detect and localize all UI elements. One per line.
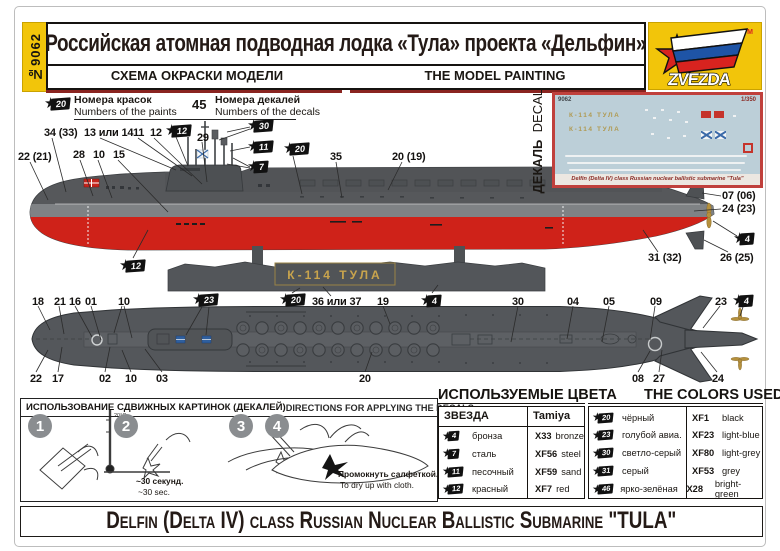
star-icon: ★ xyxy=(733,232,746,245)
side-view-callout: 34 (33) xyxy=(44,127,77,139)
step2-note-ru: ~30 секунд. xyxy=(136,476,183,486)
colors-title-underline-left xyxy=(438,403,585,404)
decal-caption: Delfin (Delta IV) class Russian nuclear … xyxy=(555,174,760,185)
side-view-callout: 31 (32) xyxy=(648,252,681,264)
star-icon: ★ xyxy=(165,124,178,137)
paint-flag: ★7 xyxy=(439,448,472,459)
top-view-callout: 18 xyxy=(32,296,44,308)
step4-note-en: To dry up with cloth. xyxy=(340,480,414,490)
subtitle-russian: СХЕМА ОКРАСКИ МОДЕЛИ xyxy=(48,68,346,83)
star-icon: ★ xyxy=(119,259,132,272)
footer-title: Delfin (Delta IV) class Russian Nuclear … xyxy=(106,508,676,535)
step4-note-ru: Промокнуть салфеткой. xyxy=(338,469,438,479)
top-view-callout: 05 xyxy=(603,296,615,308)
paint-table-right: ★20 чёрный XF1 black ★23 голубой авиа. X… xyxy=(588,406,763,499)
paint-table-left: ЗВЕЗДА Tamiya ★4 бронза X33 bronze ★7 ст… xyxy=(438,406,585,499)
top-view-callout: 19 xyxy=(377,296,389,308)
decal-andrew-flag-1 xyxy=(701,131,712,139)
decal-waterline-1 xyxy=(565,155,747,157)
product-number-block: №9062 xyxy=(22,22,48,92)
star-icon: ★ xyxy=(442,484,453,495)
star-icon: ★ xyxy=(442,431,453,442)
tamiya-column: Tamiya xyxy=(533,410,570,422)
propeller-side xyxy=(707,203,712,228)
star-icon: ★ xyxy=(592,448,603,459)
zvezda-emblem: TM ZVEZDA xyxy=(649,23,761,89)
side-view-paint-flag: ★20 xyxy=(283,142,309,155)
paint-flag: ★4 xyxy=(439,431,472,442)
paint-flag: ★46 xyxy=(589,484,620,495)
top-view-callout: 02 xyxy=(99,373,111,385)
subtitle-box: СХЕМА ОКРАСКИ МОДЕЛИ THE MODEL PAINTING xyxy=(46,64,646,90)
subtitle-underline-left xyxy=(46,90,342,93)
star-icon: ★ xyxy=(732,294,745,307)
top-view-paint-flag: ★4 xyxy=(420,294,441,307)
stand-plate-text: К-114 ТУЛА xyxy=(287,268,382,282)
paint-flag: ★12 xyxy=(439,484,472,495)
top-view-callout: 08 xyxy=(632,373,644,385)
side-view-callout: 15 xyxy=(113,149,125,161)
top-view-callout: 03 xyxy=(156,373,168,385)
decal-red-flag-1 xyxy=(701,111,711,118)
decal-boat-name-2: К-114 ТУЛА xyxy=(569,126,620,133)
subtitle-english: THE MODEL PAINTING xyxy=(358,68,632,83)
paint-flag: ★31 xyxy=(589,466,622,477)
decal-red-box xyxy=(743,143,753,153)
star-icon: ★ xyxy=(420,294,433,307)
side-view-callout: 35 xyxy=(330,151,342,163)
top-view-callout: 24 xyxy=(712,373,724,385)
star-icon: ★ xyxy=(442,448,453,459)
decal-sheet-image: 9062 1/350 К-114 ТУЛА К-114 ТУЛА Delfin … xyxy=(552,92,763,188)
page-title: Российская атомная подводная лодка «Тула… xyxy=(46,30,647,58)
paint-row: ★23 голубой авиа. XF23 light-blue xyxy=(589,426,762,444)
zvezda-column: ЗВЕЗДА xyxy=(444,410,489,422)
paint-row: ★20 чёрный XF1 black xyxy=(589,409,762,427)
paint-flag: ★30 xyxy=(589,448,622,459)
side-view-callout: 13 или 14 xyxy=(84,127,133,139)
paint-flag: ★20 xyxy=(589,412,622,423)
top-view-callout: 30 xyxy=(512,296,524,308)
decal-andrew-flag-2 xyxy=(715,131,726,139)
brand-name: ZVEZDA xyxy=(667,70,732,89)
top-view-callout: 36 или 37 xyxy=(312,296,361,308)
top-view-callout: 23 xyxy=(715,296,727,308)
paint-row: ★31 серый XF53 grey xyxy=(589,462,762,480)
naval-flag-decal xyxy=(197,150,208,158)
step-4-badge: 4 xyxy=(265,414,289,438)
paint-row: ★7 сталь XF56 steel xyxy=(439,445,584,463)
top-view-callout: 27 xyxy=(653,373,665,385)
star-icon: ★ xyxy=(192,293,205,306)
star-icon: ★ xyxy=(592,430,603,441)
star-icon: ★ xyxy=(592,412,603,423)
top-view-callout: 10 xyxy=(118,296,130,308)
directions-title-ru: ИСПОЛЬЗОВАНИЕ СДВИЖНЫХ КАРТИНОК (ДЕКАЛЕЙ… xyxy=(26,402,286,413)
side-view-paint-flag: ★7 xyxy=(247,160,268,173)
star-icon: ★ xyxy=(247,140,260,153)
top-view-callout: 21 xyxy=(54,296,66,308)
legend-paint-flag: ★ 20 xyxy=(44,97,70,110)
top-view-paint-flag: ★23 xyxy=(192,293,218,306)
side-view-callout: 07 (06) xyxy=(722,190,755,202)
top-view-callout: 09 xyxy=(650,296,662,308)
top-view-paint-flag: ★20 xyxy=(279,293,305,306)
decal-boat-name-1: К-114 ТУЛА xyxy=(569,112,620,119)
paint-flag: ★11 xyxy=(439,466,472,477)
star-icon: ★ xyxy=(592,484,603,495)
side-view-paint-flag: ★4 xyxy=(733,232,754,245)
side-view-paint-flag: ★11 xyxy=(247,140,273,153)
colors-title-ru: ИСПОЛЬЗУЕМЫЕ ЦВЕТА xyxy=(438,387,617,403)
top-view-drawing xyxy=(32,296,757,382)
star-icon: ★ xyxy=(247,160,260,173)
side-view-callout: 20 (19) xyxy=(392,151,425,163)
star-icon: ★ xyxy=(279,293,292,306)
paint-row: ★11 песочный XF59 sand xyxy=(439,463,584,481)
footer-title-bar: Delfin (Delta IV) class Russian Nuclear … xyxy=(20,506,763,537)
side-view-paint-flag: ★30 xyxy=(247,119,273,132)
directions-header: ИСПОЛЬЗОВАНИЕ СДВИЖНЫХ КАРТИНОК (ДЕКАЛЕЙ… xyxy=(21,399,437,417)
top-view-callout: 01 xyxy=(85,296,97,308)
top-view-callout: 10 xyxy=(125,373,137,385)
decal-scale: 1/350 xyxy=(741,97,756,103)
top-view-callout: 16 xyxy=(69,296,81,308)
side-view-callout: 28 xyxy=(73,149,85,161)
title-box: Российская атомная подводная лодка «Тула… xyxy=(46,22,646,66)
display-stand: К-114 ТУЛА xyxy=(168,246,545,291)
top-view-callout: 17 xyxy=(52,373,64,385)
side-view-callout: 12 xyxy=(150,127,162,139)
top-view-paint-flag: ★4 xyxy=(732,294,753,307)
step-2-badge: 2 xyxy=(114,414,138,438)
paint-row: ★12 красный XF7 red xyxy=(439,480,584,498)
decal-sheet-number: 9062 xyxy=(558,97,571,103)
paint-table-header: ЗВЕЗДА Tamiya xyxy=(439,407,584,427)
paint-row: ★4 бронза X33 bronze xyxy=(439,427,584,445)
top-view-callout: 20 xyxy=(359,373,371,385)
star-icon: ★ xyxy=(442,466,453,477)
legend-decal-number: 45 xyxy=(192,97,206,112)
side-view-callout: 10 xyxy=(93,149,105,161)
star-icon: ★ xyxy=(283,142,296,155)
star-icon: ★ xyxy=(44,97,57,110)
side-view-callout: 22 (21) xyxy=(18,151,51,163)
side-view-paint-flag: ★12 xyxy=(119,259,145,272)
brand-logo: TM ZVEZDA xyxy=(648,22,762,90)
paint-flag: ★23 xyxy=(589,430,622,441)
side-view-callout: 26 (25) xyxy=(720,252,753,264)
instruction-sheet: К-114 ТУЛА xyxy=(0,0,780,551)
top-view-callout: 22 xyxy=(30,373,42,385)
jack-flag-decal xyxy=(84,179,99,187)
step2-note-en: ~30 sec. xyxy=(138,487,170,497)
decal-red-flag-2 xyxy=(714,111,724,118)
paint-row: ★30 светло-серый XF80 light-grey xyxy=(589,444,762,462)
star-icon: ★ xyxy=(247,119,260,132)
step-1-badge: 1 xyxy=(28,414,52,438)
product-number: №9062 xyxy=(28,33,43,82)
star-icon: ★ xyxy=(592,466,603,477)
decal-panel-label: ДЕКАЛЬ DECAL xyxy=(524,94,550,188)
step-3-badge: 3 xyxy=(229,414,253,438)
top-view-callout: 04 xyxy=(567,296,579,308)
colors-title-underline-right xyxy=(588,403,763,404)
side-view-callout: 11 xyxy=(133,127,144,139)
legend-paints: Номера красокNumbers of the paints xyxy=(74,95,177,118)
legend-decals: Номера декалейNumbers of the decals xyxy=(215,95,320,118)
side-view-paint-flag: ★12 xyxy=(165,124,191,137)
side-view-callout: 24 (23) xyxy=(722,203,755,215)
decal-waterline-3 xyxy=(569,169,741,171)
side-view-callout: 29 xyxy=(197,132,209,144)
paint-row: ★46 ярко-зелёная X28 bright-green xyxy=(589,480,762,498)
colors-title-en: THE COLORS USED xyxy=(644,387,780,403)
decal-waterline-2 xyxy=(567,162,745,164)
